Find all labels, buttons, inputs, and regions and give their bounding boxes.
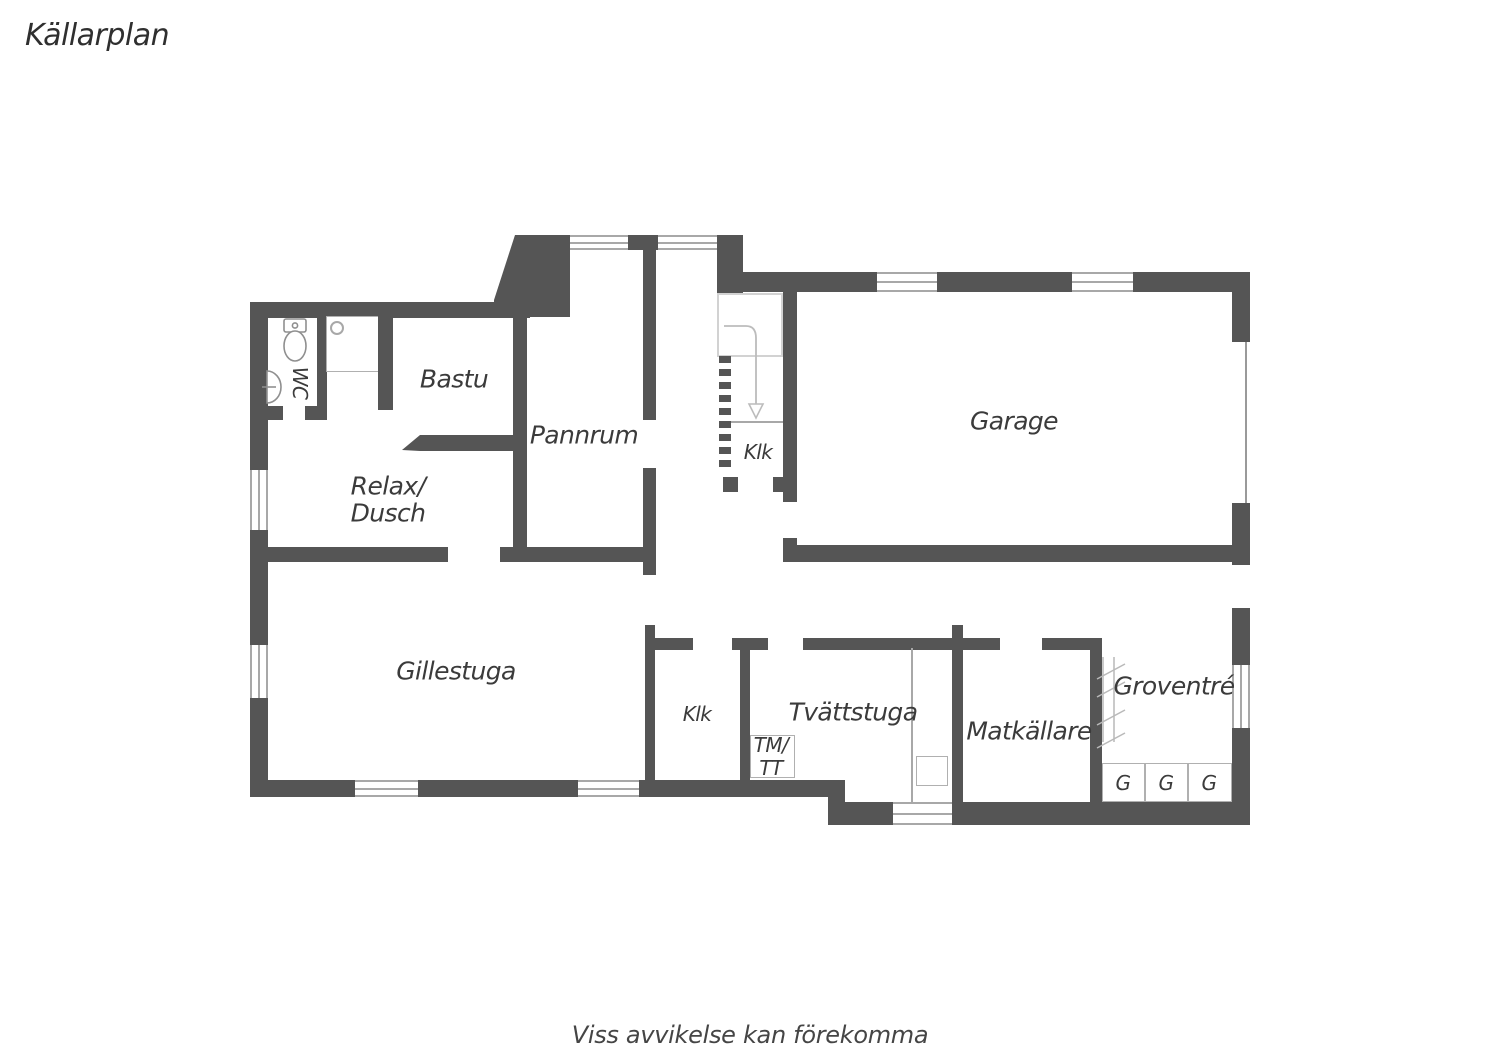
stairs-arrowhead xyxy=(749,404,763,418)
room-label-pannrum: Pannrum xyxy=(530,421,638,450)
window xyxy=(250,645,268,698)
window xyxy=(570,235,628,250)
wall-segment xyxy=(250,547,448,562)
wall-segment xyxy=(952,625,963,808)
wall-segment xyxy=(723,477,738,492)
wall-segment xyxy=(730,272,877,292)
wall-segment xyxy=(645,625,655,782)
wall-segment xyxy=(420,435,517,451)
wall-segment xyxy=(643,250,656,420)
wall-segment xyxy=(1232,272,1250,342)
wall-segment xyxy=(773,477,783,492)
wall-segment xyxy=(655,638,693,650)
wall-segment xyxy=(740,648,750,780)
room-label-wc: WC xyxy=(288,367,312,400)
page-title: Källarplan xyxy=(25,18,169,53)
wall-segment xyxy=(783,545,1250,562)
window xyxy=(355,780,418,797)
wall-segment xyxy=(250,302,268,470)
room-label-garage: Garage xyxy=(970,407,1058,436)
garage-door-line xyxy=(1245,342,1247,504)
floor-plan-page: Källarplan xyxy=(0,0,1500,1060)
window xyxy=(893,802,952,825)
wall-segment xyxy=(378,315,393,410)
window xyxy=(877,272,937,292)
wall-segment xyxy=(952,802,1250,825)
stairs-icon xyxy=(719,356,731,468)
wall-segment xyxy=(250,780,355,797)
wall-segment xyxy=(937,272,1072,292)
room-label-gillestuga: Gillestuga xyxy=(396,657,515,686)
wall-segment xyxy=(845,802,893,825)
window xyxy=(1232,665,1250,728)
wall-segment xyxy=(1232,608,1250,665)
room-label-groventre: Groventré xyxy=(1113,672,1234,701)
stairs-upper-flight xyxy=(717,293,783,357)
window xyxy=(1072,272,1133,292)
wall-segment xyxy=(305,406,327,420)
room-label-matkallare: Matkällare xyxy=(966,717,1091,746)
disclaimer-text: Viss avvikelse kan förekomma xyxy=(572,1021,929,1049)
wall-segment xyxy=(500,547,655,562)
wardrobe-label: G xyxy=(1202,771,1217,795)
wall-segment xyxy=(513,317,527,561)
wall-segment xyxy=(803,638,1000,650)
wardrobe-label: G xyxy=(1159,771,1174,795)
wardrobe-label: G xyxy=(1116,771,1131,795)
room-label-klk-stairs: Klk xyxy=(744,440,772,464)
toilet-icon xyxy=(284,319,306,361)
wall-segment xyxy=(418,780,578,797)
wall-segment xyxy=(267,406,283,420)
wall-segment xyxy=(1090,638,1102,808)
window xyxy=(250,470,268,530)
room-label-tm: TM/ xyxy=(754,733,788,757)
wall-segment xyxy=(828,780,845,825)
door-wedge xyxy=(402,435,420,451)
window xyxy=(578,780,639,797)
appliance-box xyxy=(916,756,948,786)
room-label-klk: Klk xyxy=(683,702,711,726)
room-label-relax-line1: Relax/ xyxy=(351,472,426,501)
room-label-relax-line2: Dusch xyxy=(351,499,426,528)
room-label-bastu: Bastu xyxy=(420,365,488,394)
shower-drain-icon xyxy=(330,321,344,335)
room-label-tvattstuga: Tvättstuga xyxy=(789,698,918,727)
wall-segment xyxy=(732,638,768,650)
window xyxy=(658,235,717,250)
wall-segment xyxy=(628,235,658,250)
room-label-tt: TT xyxy=(759,756,782,780)
plan-shapes xyxy=(0,0,1500,1060)
wall-segment xyxy=(783,292,797,502)
stairs-landing-line xyxy=(731,421,783,423)
wall-segment xyxy=(639,780,845,797)
